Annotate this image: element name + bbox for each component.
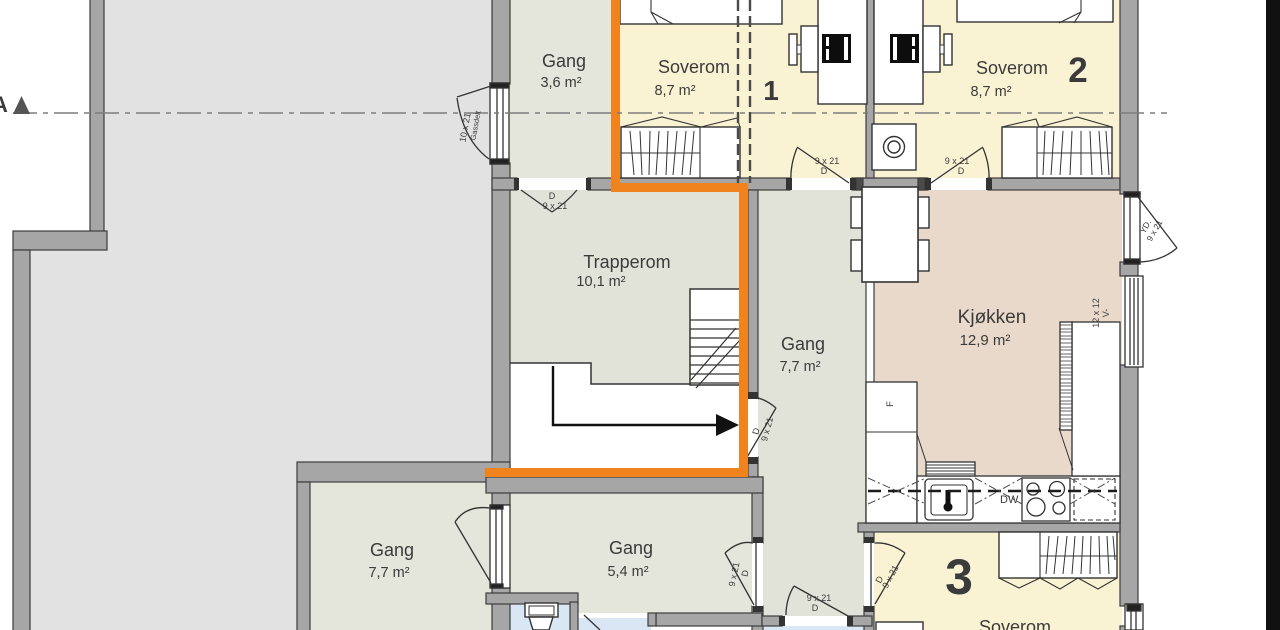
svg-text:12 x 12: 12 x 12 [1091,298,1101,328]
svg-text:9 x 21: 9 x 21 [543,201,568,211]
svg-text:3,6 m²: 3,6 m² [540,75,581,91]
svg-text:Gang: Gang [542,51,586,71]
svg-text:D: D [549,191,556,201]
svg-text:3: 3 [945,549,973,605]
svg-text:Soverom: Soverom [658,57,730,77]
svg-text:2: 2 [1068,51,1087,90]
svg-text:F: F [885,401,896,407]
svg-text:Kjøkken: Kjøkken [958,307,1027,328]
svg-text:12,9 m²: 12,9 m² [960,332,1011,349]
svg-text:Soverom: Soverom [979,617,1051,630]
svg-text:D: D [958,166,965,176]
svg-text:7,7 m²: 7,7 m² [368,565,409,581]
svg-text:9 x 21: 9 x 21 [815,156,840,166]
svg-text:D: D [812,603,819,613]
svg-text:Trapperom: Trapperom [583,252,670,272]
svg-text:Gang: Gang [370,540,414,560]
svg-text:V-: V- [1101,309,1111,318]
svg-text:D: D [821,166,828,176]
svg-text:1: 1 [763,75,779,106]
svg-text:9 x 21: 9 x 21 [945,156,970,166]
svg-text:8,7 m²: 8,7 m² [654,83,695,99]
svg-text:8,7 m²: 8,7 m² [970,84,1011,100]
svg-text:10,1 m²: 10,1 m² [576,274,625,290]
svg-text:A: A [0,92,8,117]
svg-text:9 x 21: 9 x 21 [807,593,832,603]
svg-text:Soverom: Soverom [976,58,1048,78]
svg-text:Gang: Gang [781,334,825,354]
svg-text:Gang: Gang [609,538,653,558]
svg-text:7,7 m²: 7,7 m² [779,359,820,375]
svg-text:DW: DW [1000,494,1019,506]
svg-text:5,4 m²: 5,4 m² [607,564,648,580]
